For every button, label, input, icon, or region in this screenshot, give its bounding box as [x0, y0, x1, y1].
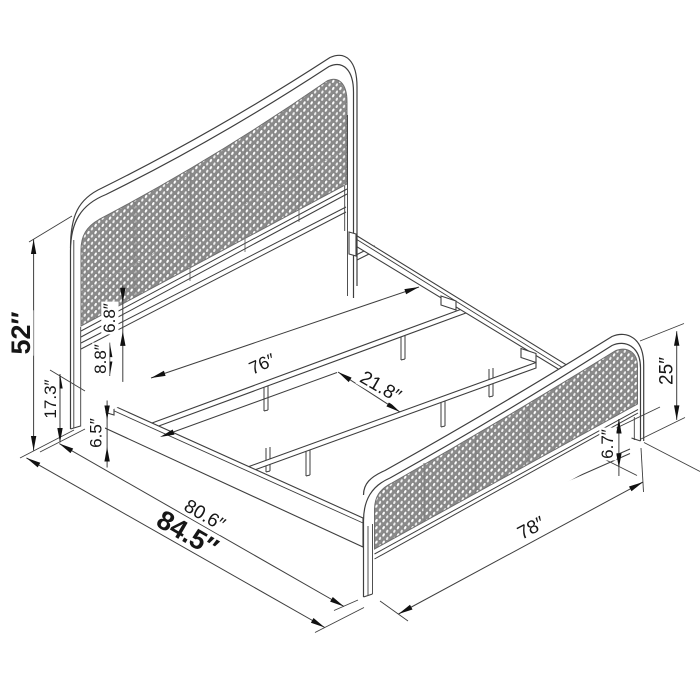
svg-text:6.8″: 6.8″: [100, 303, 119, 333]
svg-text:52″: 52″: [6, 311, 36, 354]
svg-text:25″: 25″: [657, 357, 678, 385]
svg-text:8.8″: 8.8″: [91, 344, 110, 374]
svg-text:6.7″: 6.7″: [598, 429, 617, 459]
svg-text:17.3″: 17.3″: [41, 379, 60, 418]
svg-text:6.5″: 6.5″: [87, 418, 106, 448]
